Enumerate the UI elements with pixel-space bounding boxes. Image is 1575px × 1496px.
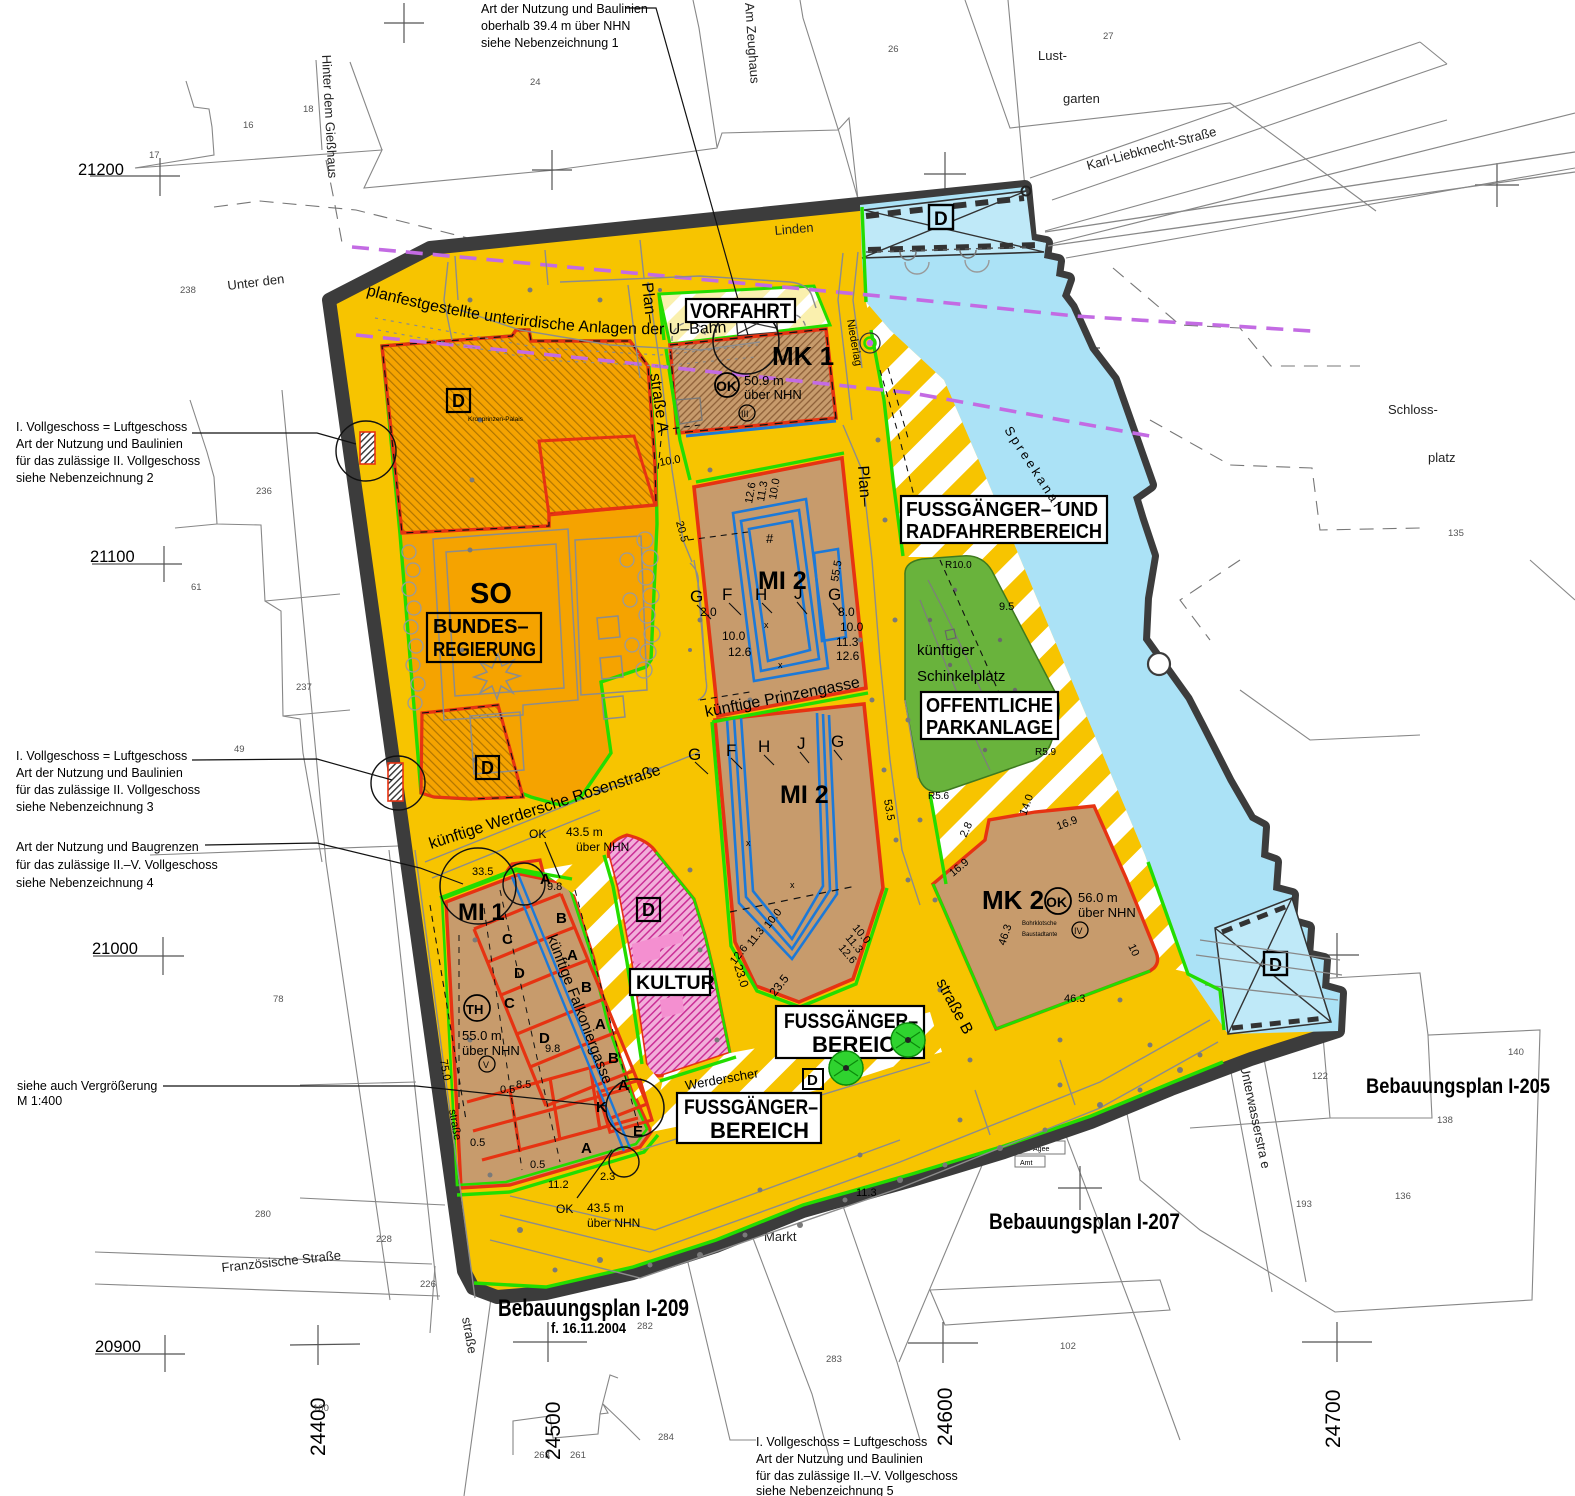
svg-text:B: B xyxy=(608,1050,619,1067)
svg-text:43.5 m: 43.5 m xyxy=(566,825,603,839)
svg-text:Bohrklotsche: Bohrklotsche xyxy=(1022,921,1057,927)
svg-text:TH: TH xyxy=(466,1002,483,1017)
svg-text:G: G xyxy=(688,745,701,764)
svg-text:27: 27 xyxy=(1103,31,1114,42)
svg-text:140: 140 xyxy=(1508,1047,1524,1058)
svg-text:D: D xyxy=(452,391,465,411)
svg-text:F: F xyxy=(726,741,736,760)
svg-text:24: 24 xyxy=(530,77,541,88)
svg-text:Bebauungsplan I-207: Bebauungsplan I-207 xyxy=(989,1209,1180,1234)
svg-text:12.6: 12.6 xyxy=(836,649,860,663)
svg-text:8.0: 8.0 xyxy=(838,605,855,619)
svg-text:OK: OK xyxy=(1046,894,1067,910)
svg-text:D: D xyxy=(934,209,948,230)
svg-text:228: 228 xyxy=(376,1234,392,1245)
svg-text:Art der Nutzung und Baulinien: Art der Nutzung und Baulinien xyxy=(16,766,183,780)
svg-text:78: 78 xyxy=(273,994,284,1005)
svg-text:Bebauungsplan I-209: Bebauungsplan I-209 xyxy=(498,1295,689,1322)
svg-text:I. Vollgeschoss = Luftgeschoss: I. Vollgeschoss = Luftgeschoss xyxy=(756,1435,927,1449)
svg-text:A: A xyxy=(618,1077,629,1094)
svg-text:17: 17 xyxy=(149,150,160,161)
svg-text:0.5: 0.5 xyxy=(500,1084,515,1096)
svg-text:für das zulässige II.–V. Vollg: für das zulässige II.–V. Vollgeschoss xyxy=(16,858,218,872)
svg-text:IV: IV xyxy=(1074,926,1083,936)
svg-text:RADFAHRERBEREICH: RADFAHRERBEREICH xyxy=(906,521,1102,543)
svg-text:über NHN: über NHN xyxy=(744,387,802,402)
svg-text:12.6: 12.6 xyxy=(728,645,752,659)
svg-text:VORFAHRT: VORFAHRT xyxy=(690,300,791,323)
svg-text:236: 236 xyxy=(256,486,272,497)
svg-text:238: 238 xyxy=(180,285,196,296)
svg-text:E: E xyxy=(633,1123,643,1140)
svg-text:R5.9: R5.9 xyxy=(1035,747,1057,758)
svg-text:16: 16 xyxy=(243,120,254,131)
svg-text:D: D xyxy=(539,1030,550,1047)
svg-text:10.0: 10.0 xyxy=(722,629,746,643)
svg-text:für das zulässige II.–V. Vollg: für das zulässige II.–V. Vollgeschoss xyxy=(756,1469,958,1483)
svg-text:Schloss-: Schloss- xyxy=(1388,402,1438,417)
svg-text:Art der Nutzung und Baulinien: Art der Nutzung und Baulinien xyxy=(16,437,183,451)
svg-text:100: 100 xyxy=(313,1403,329,1414)
svg-text:siehe Nebenzeichnung 5: siehe Nebenzeichnung 5 xyxy=(756,1484,894,1496)
svg-text:282: 282 xyxy=(637,1321,653,1332)
svg-text:11.3: 11.3 xyxy=(856,1187,877,1199)
svg-text:61: 61 xyxy=(191,582,202,593)
svg-text:H: H xyxy=(758,737,770,756)
svg-text:MI 2: MI 2 xyxy=(780,781,829,809)
svg-text:A: A xyxy=(595,1016,606,1033)
svg-text:55.0 m: 55.0 m xyxy=(462,1028,502,1043)
svg-text:H: H xyxy=(755,585,767,604)
svg-text:D: D xyxy=(514,965,525,982)
svg-text:2.0: 2.0 xyxy=(700,605,717,619)
svg-text:D: D xyxy=(481,758,494,778)
svg-text:R5.6: R5.6 xyxy=(928,791,950,802)
svg-text:D: D xyxy=(642,900,655,920)
svg-text:über NHN: über NHN xyxy=(462,1043,520,1058)
svg-text:18: 18 xyxy=(303,104,314,115)
svg-text:11.3: 11.3 xyxy=(836,635,859,649)
svg-text:49: 49 xyxy=(234,744,245,755)
svg-text:x: x xyxy=(746,838,751,848)
svg-text:C: C xyxy=(504,995,515,1012)
svg-text:III: III xyxy=(741,409,749,419)
svg-text:9.5: 9.5 xyxy=(999,601,1014,613)
svg-text:KULTUR: KULTUR xyxy=(636,972,715,994)
svg-text:MK 1: MK 1 xyxy=(772,341,834,371)
svg-text:10.0: 10.0 xyxy=(840,620,864,634)
svg-text:für das zulässige II. Vollgesc: für das zulässige II. Vollgeschoss xyxy=(16,454,200,468)
svg-text:263: 263 xyxy=(534,1450,550,1461)
svg-text:x: x xyxy=(790,880,795,890)
svg-text:über NHN: über NHN xyxy=(576,840,629,854)
svg-text:284: 284 xyxy=(658,1432,674,1443)
svg-text:0.5: 0.5 xyxy=(470,1137,485,1149)
svg-text:x: x xyxy=(778,660,783,670)
svg-text:0.5: 0.5 xyxy=(530,1159,545,1171)
svg-text:Kronprinzen-Palais: Kronprinzen-Palais xyxy=(468,416,524,423)
svg-text:FUSSGÄNGER–: FUSSGÄNGER– xyxy=(684,1096,818,1119)
svg-text:B: B xyxy=(556,910,567,927)
svg-text:A: A xyxy=(567,947,578,964)
svg-text:33.5: 33.5 xyxy=(472,866,493,878)
svg-text:K: K xyxy=(596,1099,607,1116)
svg-text:A: A xyxy=(540,871,551,888)
svg-text:26: 26 xyxy=(888,44,899,55)
svg-text:21200: 21200 xyxy=(78,161,124,179)
svg-text:J: J xyxy=(797,734,806,753)
svg-text:I. Vollgeschoss = Luftgeschoss: I. Vollgeschoss = Luftgeschoss xyxy=(16,420,187,434)
svg-text:OK: OK xyxy=(716,378,737,394)
svg-text:siehe auch Vergrößerung: siehe auch Vergrößerung xyxy=(17,1079,157,1093)
svg-text:43.5 m: 43.5 m xyxy=(587,1201,624,1215)
svg-text:M 1:400: M 1:400 xyxy=(17,1094,62,1108)
svg-text:Baustadtante: Baustadtante xyxy=(1022,932,1058,938)
svg-text:künftiger: künftiger xyxy=(917,642,975,659)
svg-text:21100: 21100 xyxy=(90,548,135,566)
svg-text:193: 193 xyxy=(1296,1199,1312,1210)
svg-text:21000: 21000 xyxy=(92,940,138,958)
svg-text:MI 1: MI 1 xyxy=(458,899,505,926)
svg-text:G: G xyxy=(828,585,841,604)
svg-text:Schinkelplatz: Schinkelplatz xyxy=(917,668,1005,685)
svg-text:siehe Nebenzeichnung 3: siehe Nebenzeichnung 3 xyxy=(16,800,154,814)
svg-text:122: 122 xyxy=(1312,1071,1328,1082)
svg-text:MK 2: MK 2 xyxy=(982,885,1044,915)
svg-text:x: x xyxy=(764,620,769,630)
svg-text:V: V xyxy=(483,1060,489,1070)
svg-text:platz: platz xyxy=(1428,450,1455,465)
svg-text:Art der Nutzung und Baugrenzen: Art der Nutzung und Baugrenzen xyxy=(16,840,199,854)
svg-text:237: 237 xyxy=(296,682,312,693)
svg-text:für das zulässige II. Vollgesc: für das zulässige II. Vollgeschoss xyxy=(16,783,200,797)
svg-text:283: 283 xyxy=(826,1354,842,1365)
svg-text:G: G xyxy=(831,732,844,751)
svg-text:FUSSGÄNGER– UND: FUSSGÄNGER– UND xyxy=(906,498,1098,521)
svg-text:Art der Nutzung und Baulinien: Art der Nutzung und Baulinien xyxy=(756,1452,923,1466)
svg-text:135: 135 xyxy=(1448,528,1464,539)
svg-text:SO: SO xyxy=(470,578,512,610)
svg-text:garten: garten xyxy=(1063,91,1100,106)
svg-text:8.5: 8.5 xyxy=(516,1079,531,1091)
svg-text:siehe Nebenzeichnung 2: siehe Nebenzeichnung 2 xyxy=(16,471,154,485)
svg-text:Art der Nutzung und Baulinien: Art der Nutzung und Baulinien xyxy=(481,2,648,16)
svg-text:#: # xyxy=(766,531,774,546)
svg-text:102: 102 xyxy=(1060,1341,1076,1352)
svg-text:B: B xyxy=(581,979,592,996)
svg-text:56.0 m: 56.0 m xyxy=(1078,890,1118,905)
svg-text:REGIERUNG: REGIERUNG xyxy=(433,639,536,661)
svg-text:50.9 m: 50.9 m xyxy=(744,373,784,388)
svg-text:R10.0: R10.0 xyxy=(945,560,972,571)
svg-text:f. 16.11.2004: f. 16.11.2004 xyxy=(551,1321,626,1337)
svg-text:138: 138 xyxy=(1437,1115,1453,1126)
svg-text:261: 261 xyxy=(570,1450,586,1461)
svg-text:siehe Nebenzeichnung 4: siehe Nebenzeichnung 4 xyxy=(16,876,154,890)
svg-text:Lust-: Lust- xyxy=(1038,48,1067,63)
svg-text:Bebauungsplan I-205: Bebauungsplan I-205 xyxy=(1366,1075,1550,1098)
svg-text:11.2: 11.2 xyxy=(548,1179,569,1191)
svg-text:A: A xyxy=(581,1140,592,1157)
svg-text:Amt: Amt xyxy=(1020,1160,1033,1167)
svg-text:siehe Nebenzeichnung 1: siehe Nebenzeichnung 1 xyxy=(481,36,619,50)
svg-text:BUNDES–: BUNDES– xyxy=(433,616,529,638)
svg-text:PARKANLAGE: PARKANLAGE xyxy=(926,716,1053,739)
svg-text:280: 280 xyxy=(255,1209,271,1220)
svg-text:D: D xyxy=(807,1072,818,1089)
svg-text:C: C xyxy=(502,931,513,948)
svg-text:über NHN: über NHN xyxy=(1078,905,1136,920)
svg-text:Plan–: Plan– xyxy=(854,465,874,507)
svg-text:J: J xyxy=(794,584,803,603)
svg-text:oberhalb 39.4 m über NHN: oberhalb 39.4 m über NHN xyxy=(481,19,630,33)
svg-text:20900: 20900 xyxy=(95,1338,141,1356)
svg-text:OFFENTLICHE: OFFENTLICHE xyxy=(926,694,1053,717)
svg-text:OK: OK xyxy=(529,827,546,841)
svg-text:BEREICH: BEREICH xyxy=(710,1118,809,1143)
svg-text:46.3: 46.3 xyxy=(1064,993,1085,1005)
svg-text:über NHN: über NHN xyxy=(587,1216,640,1230)
svg-text:226: 226 xyxy=(420,1279,436,1290)
svg-text:OK: OK xyxy=(556,1202,573,1216)
svg-text:G: G xyxy=(690,587,703,606)
svg-text:24600: 24600 xyxy=(934,1388,957,1446)
svg-text:I. Vollgeschoss = Luftgeschoss: I. Vollgeschoss = Luftgeschoss xyxy=(16,749,187,763)
svg-text:24700: 24700 xyxy=(1322,1390,1345,1448)
svg-text:2.3: 2.3 xyxy=(600,1171,615,1183)
svg-text:F: F xyxy=(722,585,732,604)
svg-text:136: 136 xyxy=(1395,1191,1411,1202)
